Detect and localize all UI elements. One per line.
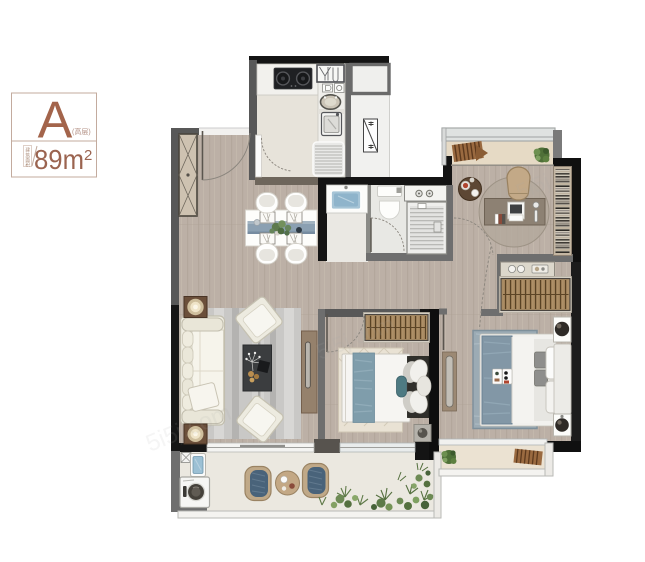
svg-text:积: 积 <box>25 162 30 169</box>
svg-text:2: 2 <box>84 147 92 164</box>
svg-text:(高层): (高层) <box>72 127 91 136</box>
svg-text:A: A <box>38 92 73 150</box>
svg-text:89m: 89m <box>34 144 84 175</box>
